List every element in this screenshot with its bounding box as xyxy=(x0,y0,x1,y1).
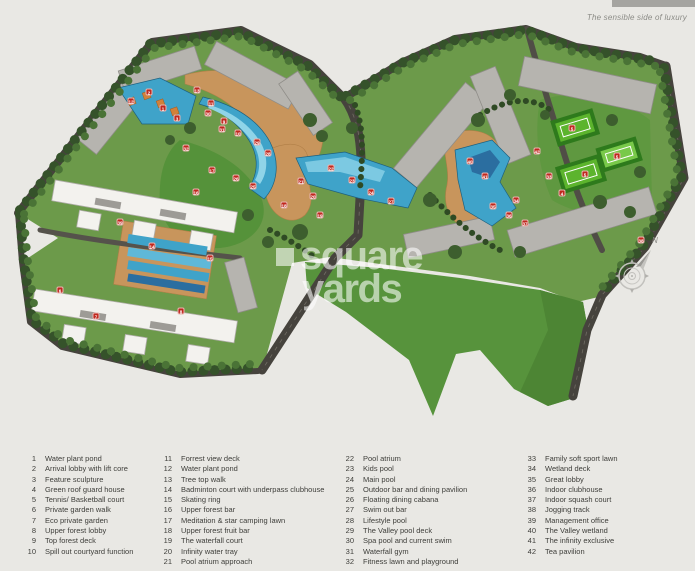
legend-item-number: 20 xyxy=(158,547,172,557)
master-plan-map xyxy=(0,0,695,445)
map-marker-9: 9 xyxy=(221,118,228,125)
legend-item-18: 18Upper forest fruit bar xyxy=(158,526,324,536)
legend-item-9: 9Top forest deck xyxy=(22,536,133,546)
legend-item-number: 34 xyxy=(522,464,536,474)
legend-item-label: Skating ring xyxy=(181,495,221,505)
legend-item-23: 23Kids pool xyxy=(340,464,467,474)
legend-item-number: 42 xyxy=(522,547,536,557)
legend-item-1: 1Water plant pond xyxy=(22,454,133,464)
legend-item-3: 3Feature sculpture xyxy=(22,475,133,485)
legend-item-label: Water plant pond xyxy=(181,464,238,474)
map-marker-13: 13 xyxy=(194,87,201,94)
legend-item-number: 15 xyxy=(158,495,172,505)
legend-item-number: 16 xyxy=(158,505,172,515)
legend-item-11: 11Forrest view deck xyxy=(158,454,324,464)
map-marker-19: 19 xyxy=(317,212,324,219)
map-marker-34: 34 xyxy=(513,197,520,204)
legend-item-17: 17Meditation & star camping lawn xyxy=(158,516,324,526)
legend-item-number: 6 xyxy=(22,505,36,515)
map-marker-10: 10 xyxy=(235,130,242,137)
legend-item-label: Floating dining cabana xyxy=(363,495,438,505)
compass-rose: N xyxy=(596,230,671,300)
legend-item-2: 2Arrival lobby with lift core xyxy=(22,464,133,474)
map-marker-2: 2 xyxy=(146,89,153,96)
legend-item-label: Family soft sport lawn xyxy=(545,454,618,464)
legend-item-number: 29 xyxy=(340,526,354,536)
legend-item-label: Swim out bar xyxy=(363,505,407,515)
legend-item-label: Top forest deck xyxy=(45,536,96,546)
legend-item-label: Water plant pond xyxy=(45,454,102,464)
legend-item-label: Indoor clubhouse xyxy=(545,485,603,495)
legend-item-37: 37Indoor squash court xyxy=(522,495,618,505)
legend-item-number: 36 xyxy=(522,485,536,495)
legend-column-3: 22Pool atrium23Kids pool24Main pool25Out… xyxy=(340,454,467,567)
legend-item-label: Upper forest lobby xyxy=(45,526,106,536)
legend-item-number: 19 xyxy=(158,536,172,546)
map-marker-22: 22 xyxy=(328,165,335,172)
legend-item-label: Tea pavilion xyxy=(545,547,585,557)
legend-item-number: 1 xyxy=(22,454,36,464)
legend-item-38: 38Jogging track xyxy=(522,505,618,515)
legend-item-number: 8 xyxy=(22,526,36,536)
map-marker-41: 41 xyxy=(482,173,489,180)
legend-item-label: Waterfall gym xyxy=(363,547,409,557)
legend-item-number: 32 xyxy=(340,557,354,567)
legend-item-number: 17 xyxy=(158,516,172,526)
legend-item-42: 42Tea pavilion xyxy=(522,547,618,557)
legend-item-29: 29The Valley pool deck xyxy=(340,526,467,536)
legend-item-label: Tennis/ Basketball court xyxy=(45,495,124,505)
legend-column-1: 1Water plant pond2Arrival lobby with lif… xyxy=(22,454,133,557)
legend-item-number: 18 xyxy=(158,526,172,536)
legend-item-number: 12 xyxy=(158,464,172,474)
map-marker-32: 32 xyxy=(183,145,190,152)
map-marker-16: 16 xyxy=(193,189,200,196)
legend-item-label: Jogging track xyxy=(545,505,590,515)
legend-item-label: Upper forest bar xyxy=(181,505,235,515)
map-marker-26: 26 xyxy=(233,175,240,182)
compass-north-label: N xyxy=(652,236,658,245)
legend-item-label: Fitness lawn and playground xyxy=(363,557,458,567)
map-marker-5: 5 xyxy=(569,125,576,132)
legend-item-5: 5Tennis/ Basketball court xyxy=(22,495,133,505)
legend-item-10: 10Spill out courtyard function xyxy=(22,547,133,557)
legend-item-16: 16Upper forest bar xyxy=(158,505,324,515)
map-marker-39: 39 xyxy=(117,219,124,226)
legend-column-2: 11Forrest view deck12Water plant pond13T… xyxy=(158,454,324,567)
legend-item-number: 2 xyxy=(22,464,36,474)
legend-item-label: Green roof guard house xyxy=(45,485,125,495)
map-marker-3: 3 xyxy=(174,115,181,122)
legend-item-label: The infinity exclusive xyxy=(545,536,614,546)
watermark-square-icon xyxy=(276,248,294,266)
legend-column-4: 33Family soft sport lawn34Wetland deck35… xyxy=(522,454,618,557)
siteplan-page: The sensible side of luxury xyxy=(0,0,695,571)
legend-item-number: 9 xyxy=(22,536,36,546)
legend-item-label: Arrival lobby with lift core xyxy=(45,464,128,474)
legend-item-label: Infinity water tray xyxy=(181,547,238,557)
legend-item-label: Meditation & star camping lawn xyxy=(181,516,285,526)
legend-item-number: 33 xyxy=(522,454,536,464)
legend-item-39: 39Management office xyxy=(522,516,618,526)
watermark: square yards xyxy=(276,240,422,306)
map-marker-24: 24 xyxy=(368,189,375,196)
legend-item-15: 15Skating ring xyxy=(158,495,324,505)
legend-item-label: Main pool xyxy=(363,475,396,485)
legend-item-label: Private garden walk xyxy=(45,505,111,515)
map-marker-14: 14 xyxy=(149,243,156,250)
map-marker-17: 17 xyxy=(209,167,216,174)
legend-item-label: Feature sculpture xyxy=(45,475,103,485)
legend-item-30: 30Spa pool and current swim xyxy=(340,536,467,546)
legend-item-number: 40 xyxy=(522,526,536,536)
map-marker-37: 37 xyxy=(522,220,529,227)
legend-item-12: 12Water plant pond xyxy=(158,464,324,474)
map-marker-40: 40 xyxy=(467,158,474,165)
map-marker-12: 12 xyxy=(128,98,135,105)
legend-item-label: Forrest view deck xyxy=(181,454,240,464)
legend-item-label: Upper forest fruit bar xyxy=(181,526,250,536)
legend-item-24: 24Main pool xyxy=(340,475,467,485)
legend-item-7: 7Eco private garden xyxy=(22,516,133,526)
map-marker-23: 23 xyxy=(349,177,356,184)
legend-item-number: 30 xyxy=(340,536,354,546)
legend-item-number: 11 xyxy=(158,454,172,464)
legend-item-35: 35Great lobby xyxy=(522,475,618,485)
legend-item-number: 3 xyxy=(22,475,36,485)
legend-item-label: Management office xyxy=(545,516,609,526)
map-marker-4: 4 xyxy=(559,190,566,197)
legend-item-number: 24 xyxy=(340,475,354,485)
legend-item-number: 13 xyxy=(158,475,172,485)
legend-item-13: 13Tree top walk xyxy=(158,475,324,485)
legend-item-number: 22 xyxy=(340,454,354,464)
legend-item-26: 26Floating dining cabana xyxy=(340,495,467,505)
legend-item-19: 19The waterfall court xyxy=(158,536,324,546)
legend-item-number: 38 xyxy=(522,505,536,515)
map-marker-29: 29 xyxy=(254,139,261,146)
legend-item-label: Outdoor bar and dining pavilion xyxy=(363,485,467,495)
legend-item-label: Tree top walk xyxy=(181,475,226,485)
map-marker-28: 28 xyxy=(265,150,272,157)
legend-item-31: 31Waterfall gym xyxy=(340,547,467,557)
legend-item-8: 8Upper forest lobby xyxy=(22,526,133,536)
compass-graphic xyxy=(596,230,671,300)
legend-item-20: 20Infinity water tray xyxy=(158,547,324,557)
map-marker-30: 30 xyxy=(205,110,212,117)
legend-item-number: 39 xyxy=(522,516,536,526)
legend-item-21: 21Pool atrium approach xyxy=(158,557,324,567)
legend-item-number: 4 xyxy=(22,485,36,495)
legend-item-label: Lifestyle pool xyxy=(363,516,407,526)
legend-item-32: 32Fitness lawn and playground xyxy=(340,557,467,567)
legend-item-number: 35 xyxy=(522,475,536,485)
legend: 1Water plant pond2Arrival lobby with lif… xyxy=(0,452,695,567)
legend-item-label: Eco private garden xyxy=(45,516,108,526)
map-marker-21: 21 xyxy=(298,178,305,185)
map-marker-42: 42 xyxy=(534,148,541,155)
legend-item-36: 36Indoor clubhouse xyxy=(522,485,618,495)
legend-item-number: 14 xyxy=(158,485,172,495)
map-marker-5: 5 xyxy=(582,171,589,178)
map-marker-33: 33 xyxy=(546,173,553,180)
legend-item-40: 40The Valley wetland xyxy=(522,526,618,536)
legend-item-34: 34Wetland deck xyxy=(522,464,618,474)
legend-item-4: 4Green roof guard house xyxy=(22,485,133,495)
map-marker-35: 35 xyxy=(490,203,497,210)
legend-item-number: 31 xyxy=(340,547,354,557)
legend-item-label: Pool atrium approach xyxy=(181,557,252,567)
legend-item-33: 33Family soft sport lawn xyxy=(522,454,618,464)
legend-item-number: 41 xyxy=(522,536,536,546)
legend-item-number: 37 xyxy=(522,495,536,505)
legend-item-27: 27Swim out bar xyxy=(340,505,467,515)
legend-item-number: 26 xyxy=(340,495,354,505)
legend-item-number: 5 xyxy=(22,495,36,505)
legend-item-28: 28Lifestyle pool xyxy=(340,516,467,526)
map-marker-15: 15 xyxy=(207,255,214,262)
legend-item-number: 27 xyxy=(340,505,354,515)
legend-item-label: Badminton court with underpass clubhouse xyxy=(181,485,324,495)
map-marker-27: 27 xyxy=(388,198,395,205)
map-marker-25: 25 xyxy=(250,183,257,190)
map-marker-7: 7 xyxy=(93,313,100,320)
legend-item-41: 41The infinity exclusive xyxy=(522,536,618,546)
legend-item-number: 28 xyxy=(340,516,354,526)
legend-item-number: 25 xyxy=(340,485,354,495)
legend-item-label: Spa pool and current swim xyxy=(363,536,452,546)
map-marker-5: 5 xyxy=(614,153,621,160)
map-marker-11: 11 xyxy=(208,100,215,107)
legend-item-label: The waterfall court xyxy=(181,536,243,546)
legend-item-14: 14Badminton court with underpass clubhou… xyxy=(158,485,324,495)
map-marker-20: 20 xyxy=(310,193,317,200)
legend-item-label: Great lobby xyxy=(545,475,584,485)
legend-item-label: Indoor squash court xyxy=(545,495,611,505)
map-marker-36: 36 xyxy=(506,212,513,219)
map-marker-6: 6 xyxy=(57,287,64,294)
legend-item-22: 22Pool atrium xyxy=(340,454,467,464)
legend-item-label: Kids pool xyxy=(363,464,394,474)
legend-item-label: Wetland deck xyxy=(545,464,590,474)
legend-item-6: 6Private garden walk xyxy=(22,505,133,515)
legend-item-label: The Valley pool deck xyxy=(363,526,432,536)
map-marker-18: 18 xyxy=(281,202,288,209)
legend-item-label: The Valley wetland xyxy=(545,526,608,536)
legend-item-25: 25Outdoor bar and dining pavilion xyxy=(340,485,467,495)
legend-item-label: Spill out courtyard function xyxy=(45,547,133,557)
map-marker-8: 8 xyxy=(178,308,185,315)
legend-item-number: 21 xyxy=(158,557,172,567)
legend-item-label: Pool atrium xyxy=(363,454,401,464)
legend-item-number: 7 xyxy=(22,516,36,526)
map-marker-1: 1 xyxy=(160,105,167,112)
legend-item-number: 10 xyxy=(22,547,36,557)
map-marker-31: 31 xyxy=(219,126,226,133)
legend-item-number: 23 xyxy=(340,464,354,474)
